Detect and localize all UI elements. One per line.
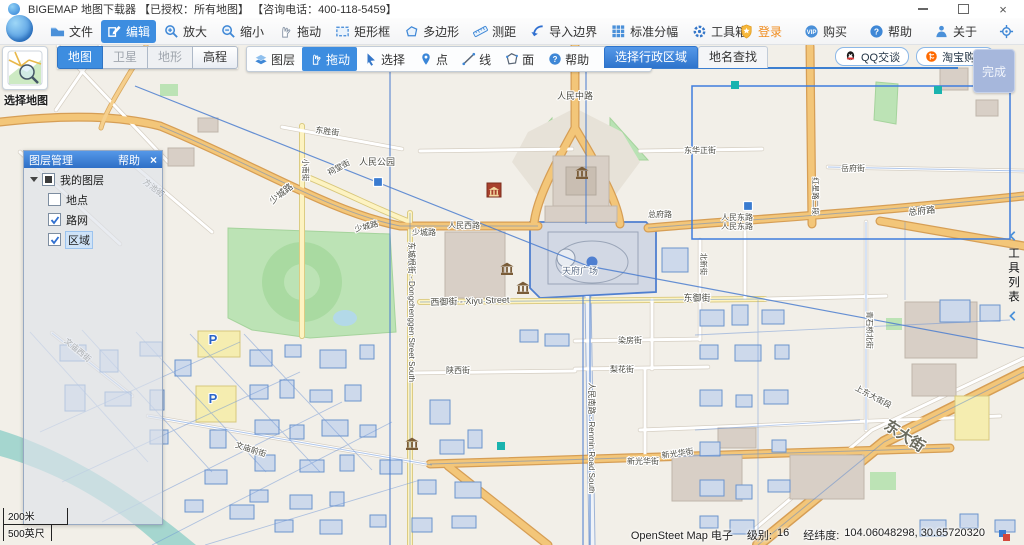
mode-terrain[interactable]: 地形 — [148, 46, 193, 69]
zoom-out-icon — [221, 24, 236, 39]
parking-icon: P — [209, 332, 218, 347]
mode-map[interactable]: 地图 — [57, 46, 103, 69]
tool-area[interactable]: 面 — [498, 47, 541, 71]
street-label: 人民公园 — [359, 157, 395, 167]
tool-line[interactable]: 线 — [455, 47, 498, 71]
svg-text:?: ? — [553, 55, 558, 64]
layer-manager-panel: 图层管理 帮助 × 我的图层 地点路网区域 — [23, 150, 163, 525]
folder-icon — [50, 24, 65, 39]
tree-expander-icon[interactable] — [30, 177, 38, 182]
edit-icon — [107, 24, 122, 39]
button-label: 购买 — [823, 23, 847, 40]
window-title: BIGEMAP 地图下载器 【已授权：所有地图】 【咨询电话：400-118-5… — [28, 1, 397, 17]
edit-button[interactable]: 编辑 — [101, 20, 156, 43]
button-label: 缩小 — [240, 23, 264, 40]
contact-links: QQ交谈淘宝购买 — [835, 47, 995, 66]
street-label: 北新街 — [699, 253, 709, 276]
button-label: 图层 — [271, 51, 295, 68]
map-mode-group: 地图卫星地形高程 — [57, 46, 238, 69]
grid-icon — [611, 24, 626, 39]
layer-row-区域[interactable]: 区域 — [24, 231, 162, 248]
layer-label: 地点 — [66, 192, 88, 208]
layer-row-地点[interactable]: 地点 — [24, 191, 162, 208]
region-tabbar: 选择行政区域地名查找 — [604, 46, 768, 68]
file-button[interactable]: 文件 — [44, 20, 99, 43]
minimize-button[interactable] — [916, 3, 930, 15]
button-label: 矩形框 — [354, 23, 390, 40]
login-icon — [739, 24, 754, 39]
area-icon — [505, 52, 519, 66]
finish-button[interactable]: 完成 — [973, 49, 1015, 93]
street-label: 人民中路 — [557, 90, 593, 101]
tool-list-tab[interactable]: 工具列表 — [1004, 230, 1022, 322]
taobao-icon — [925, 50, 938, 63]
button-label: 关于 — [953, 23, 977, 40]
street-label: 东城根街 - Dongchenggen Street South — [407, 242, 417, 382]
scale-bar: 200米 500英尺 — [3, 508, 68, 541]
button-label: 地名查找 — [709, 50, 757, 64]
zoom-in-button[interactable]: 放大 — [158, 20, 213, 43]
main-toolbar: 文件编辑放大缩小拖动矩形框多边形测距导入边界标准分幅工具箱 登录VIP购买?帮助… — [0, 18, 1024, 45]
zoom-level-value: 16 — [777, 527, 789, 543]
layer-root-checkbox[interactable] — [42, 173, 55, 186]
tool-list-label: 工具列表 — [1005, 247, 1021, 305]
app-logo-icon — [8, 3, 20, 15]
standard-sheet-button[interactable]: 标准分幅 — [605, 20, 684, 43]
street-label: 东华正街 — [684, 145, 716, 155]
svg-text:?: ? — [874, 26, 879, 36]
layer-label: 区域 — [66, 232, 92, 248]
close-button[interactable]: × — [996, 3, 1010, 15]
layer-label: 路网 — [66, 212, 88, 228]
button-label: 登录 — [758, 23, 782, 40]
button-label: 线 — [479, 51, 491, 68]
button-label: 卫星 — [113, 50, 137, 64]
restore-button[interactable] — [956, 3, 970, 15]
status-corner-icon[interactable] — [999, 530, 1010, 541]
pan-button[interactable]: 拖动 — [272, 20, 327, 43]
street-label: 人民南路 - Renmin Road South — [587, 382, 597, 493]
svg-text:VIP: VIP — [807, 28, 817, 35]
import-boundary-icon — [530, 24, 545, 39]
button-label: QQ交谈 — [861, 49, 900, 65]
help-button[interactable]: ?帮助 — [863, 20, 918, 43]
street-label: 红星路二段 — [811, 177, 821, 215]
app-logo-large-icon — [6, 15, 33, 42]
locate-button[interactable] — [993, 21, 1020, 42]
street-label: 总府路 — [648, 209, 672, 219]
button-label: 点 — [436, 51, 448, 68]
mode-satellite[interactable]: 卫星 — [103, 46, 148, 69]
button-label: 地图 — [68, 50, 92, 64]
button-label: 多边形 — [423, 23, 459, 40]
line-icon — [462, 52, 476, 66]
button-label: 面 — [522, 51, 534, 68]
layer-panel-title: 图层管理 — [29, 152, 118, 168]
help-icon: ? — [548, 52, 562, 66]
locate-icon — [999, 24, 1014, 39]
layer-root-row[interactable]: 我的图层 — [24, 171, 162, 188]
select-map-label: 选择地图 — [2, 92, 50, 108]
select-map-button[interactable] — [2, 46, 48, 90]
about-button[interactable]: 关于 — [928, 20, 983, 43]
button-label: 拖动 — [326, 51, 350, 68]
map-source-label: OpenSteet Map 电子 — [631, 527, 733, 543]
layers-icon — [254, 52, 268, 66]
status-bar: OpenSteet Map 电子 级别: 16 经纬度: 104.0604829… — [631, 527, 1010, 543]
cyan-marker-icon — [497, 442, 505, 450]
import-boundary-button[interactable]: 导入边界 — [524, 20, 603, 43]
layer-row-路网[interactable]: 路网 — [24, 211, 162, 228]
help-icon: ? — [869, 24, 884, 39]
hand-icon — [278, 24, 293, 39]
zoom-in-icon — [164, 24, 179, 39]
layer-panel-help-link[interactable]: 帮助 — [118, 152, 140, 168]
toolbox-icon — [692, 24, 707, 39]
button-label: 编辑 — [126, 23, 150, 40]
street-label: 人民西路 — [448, 220, 480, 230]
button-label: 测距 — [492, 23, 516, 40]
button-label: 标准分幅 — [630, 23, 678, 40]
buy-button[interactable]: VIP购买 — [798, 20, 853, 43]
hand-icon-w — [309, 52, 323, 66]
chevron-left-icon — [1007, 310, 1019, 322]
qq-chat-button[interactable]: QQ交谈 — [835, 47, 909, 66]
tool-point[interactable]: 点 — [412, 47, 455, 71]
login-button[interactable]: 登录 — [733, 20, 788, 43]
button-label: 文件 — [69, 23, 93, 40]
street-label: 梨花街 — [610, 364, 634, 374]
street-label: 人民东路 — [721, 212, 753, 222]
button-label: 导入边界 — [549, 23, 597, 40]
buy-icon: VIP — [804, 24, 819, 39]
scale-imperial: 500英尺 — [3, 525, 52, 541]
draw-toolbar: 图层拖动选择点线面?帮助退出 — [246, 46, 652, 72]
tool-help[interactable]: ?帮助 — [541, 47, 596, 71]
street-label: 人民东路 — [721, 221, 753, 231]
metro-station-icon — [744, 202, 753, 211]
street-label: 东御街 — [683, 292, 710, 303]
button-label: 拖动 — [297, 23, 321, 40]
rect-select-button[interactable]: 矩形框 — [329, 20, 396, 43]
layer-checkbox[interactable] — [48, 233, 61, 246]
street-label: 少城路 — [412, 227, 436, 237]
street-label: 陕西街 — [446, 365, 470, 375]
coords-value: 104.06048298, 30.65720320 — [844, 527, 985, 543]
layer-panel-close-icon[interactable]: × — [150, 153, 157, 167]
pin-icon — [419, 52, 433, 66]
coords-label: 经纬度: — [803, 527, 839, 543]
layer-panel-header[interactable]: 图层管理 帮助 × — [24, 151, 162, 168]
title-bar: BIGEMAP 地图下载器 【已授权：所有地图】 【咨询电话：400-118-5… — [0, 0, 1024, 18]
tool-layers[interactable]: 图层 — [247, 47, 302, 71]
zoom-out-button[interactable]: 缩小 — [215, 20, 270, 43]
button-label: 帮助 — [565, 51, 589, 68]
layer-root-label: 我的图层 — [60, 172, 104, 188]
button-label: 帮助 — [888, 23, 912, 40]
polygon-icon — [404, 24, 419, 39]
map-thumbnail-icon — [6, 50, 44, 86]
parking-icon: P — [209, 391, 218, 406]
ruler-icon — [473, 24, 488, 39]
mode-elevation[interactable]: 高程 — [193, 46, 238, 69]
rectangle-icon — [335, 24, 350, 39]
layer-checkbox[interactable] — [48, 193, 61, 206]
tool-select[interactable]: 选择 — [357, 47, 412, 71]
tool-pan[interactable]: 拖动 — [302, 47, 357, 71]
street-label: 染房街 — [618, 335, 642, 345]
cursor-icon — [364, 52, 378, 66]
button-label: 高程 — [203, 50, 227, 64]
about-icon — [934, 24, 949, 39]
cyan-marker-icon — [731, 81, 739, 89]
tab-place-search[interactable]: 地名查找 — [698, 46, 768, 68]
street-label: 青石桥北街 — [865, 311, 875, 349]
layer-checkbox[interactable] — [48, 213, 61, 226]
street-label: 天府广场 — [562, 265, 598, 276]
measure-button[interactable]: 测距 — [467, 20, 522, 43]
tab-admin-region[interactable]: 选择行政区域 — [604, 46, 698, 68]
button-label: 选择行政区域 — [615, 50, 687, 64]
street-label: 岳府街 — [841, 163, 865, 173]
select-map-widget: 选择地图 — [2, 46, 50, 108]
street-label: 新光华街 — [627, 456, 659, 466]
cyan-marker-icon — [934, 86, 942, 94]
button-label: 选择 — [381, 51, 405, 68]
street-label: 小南街 — [301, 159, 311, 182]
scale-metric: 200米 — [3, 508, 68, 525]
qq-icon — [844, 50, 857, 63]
polygon-select-button[interactable]: 多边形 — [398, 20, 465, 43]
metro-station-icon — [374, 178, 383, 187]
zoom-level-label: 级别: — [747, 527, 772, 543]
chevron-left-icon — [1007, 230, 1019, 242]
button-label: 放大 — [183, 23, 207, 40]
button-label: 地形 — [158, 50, 182, 64]
